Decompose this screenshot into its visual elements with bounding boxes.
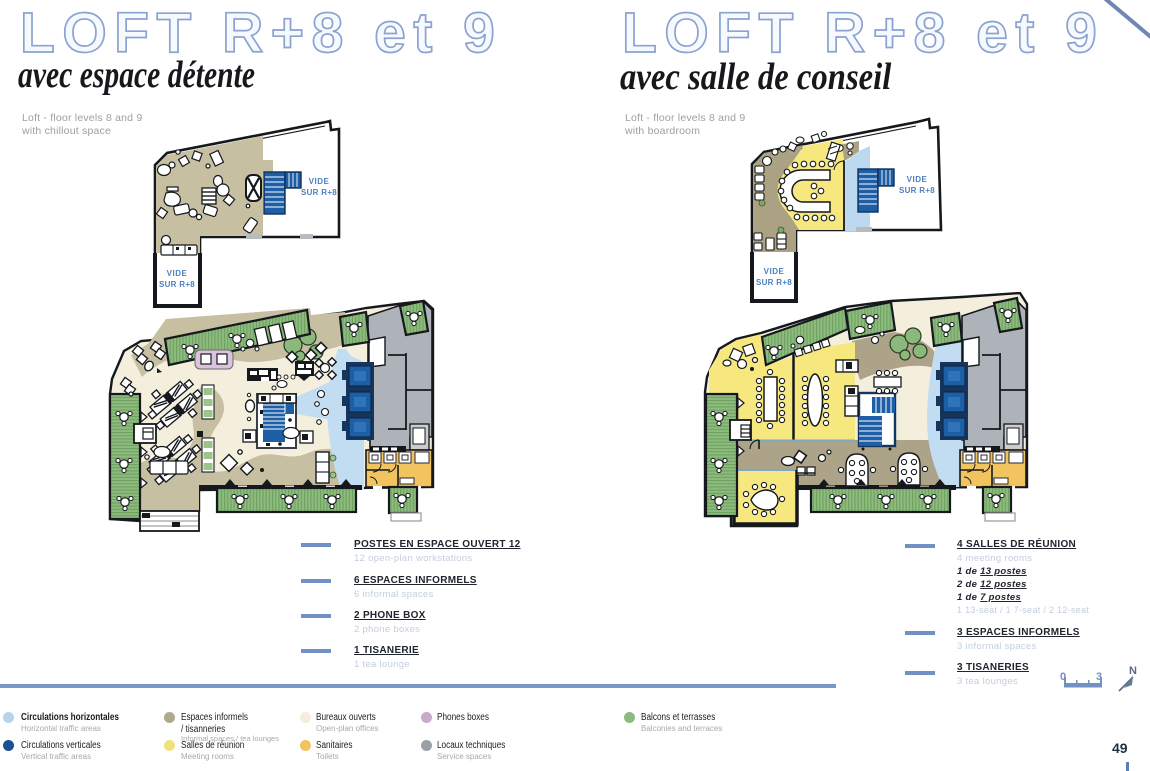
svg-text:VIDE: VIDE bbox=[167, 269, 188, 278]
svg-text:SUR R+8: SUR R+8 bbox=[301, 188, 337, 197]
svg-text:N: N bbox=[1129, 665, 1137, 677]
svg-text:SUR R+8: SUR R+8 bbox=[899, 186, 935, 195]
svg-text:SUR R+8: SUR R+8 bbox=[756, 278, 792, 287]
svg-text:VIDE: VIDE bbox=[309, 177, 330, 186]
svg-text:VIDE: VIDE bbox=[907, 175, 928, 184]
svg-text:VIDE: VIDE bbox=[764, 267, 785, 276]
svg-text:SUR R+8: SUR R+8 bbox=[159, 280, 195, 289]
